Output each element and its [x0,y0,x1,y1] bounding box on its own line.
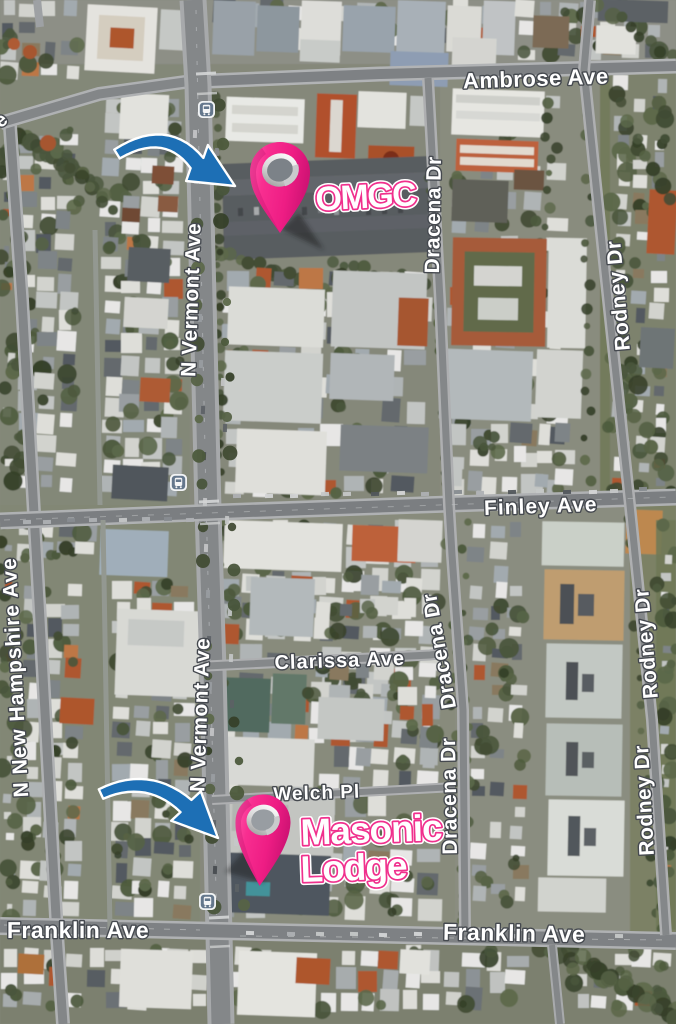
svg-text:Dracena Dr: Dracena Dr [421,156,446,273]
svg-text:Franklin Ave: Franklin Ave [7,917,149,943]
svg-text:Franklin Ave: Franklin Ave [443,919,586,947]
svg-text:Ambrose Ave: Ambrose Ave [462,63,608,93]
svg-text:OMGC: OMGC [315,175,418,218]
svg-text:Lodge: Lodge [300,845,408,890]
svg-text:Welch Pl: Welch Pl [273,781,361,805]
svg-text:Finley Ave: Finley Ave [484,493,598,520]
svg-text:Clarissa Ave: Clarissa Ave [274,648,405,675]
